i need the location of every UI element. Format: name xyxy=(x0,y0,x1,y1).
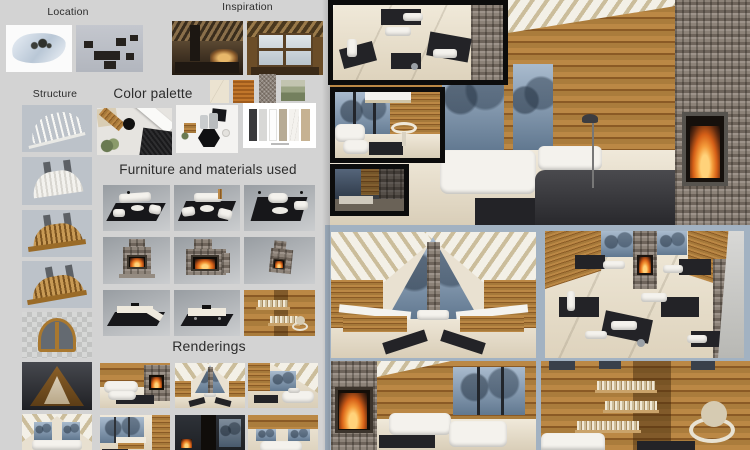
location-site-photo xyxy=(76,25,143,72)
furniture-console-1 xyxy=(103,290,170,336)
sofa xyxy=(119,192,152,203)
seat xyxy=(148,204,161,215)
books xyxy=(270,316,298,323)
section-title-renderings: Renderings xyxy=(130,338,288,354)
inset-render-dark-corner xyxy=(330,164,409,216)
dark-chimney xyxy=(201,415,216,450)
structure-step-2 xyxy=(22,157,92,205)
globe-stem xyxy=(402,132,406,146)
white-sofa xyxy=(108,391,136,400)
rug xyxy=(254,395,278,403)
plant-leaves xyxy=(99,138,119,154)
fire xyxy=(195,259,215,269)
hearth xyxy=(119,274,155,278)
rug xyxy=(379,435,435,448)
bottom-render-shelf-wall xyxy=(541,361,750,450)
seat xyxy=(181,206,195,217)
window-sliver xyxy=(549,361,575,370)
books xyxy=(597,381,655,390)
inspiration-photo-2 xyxy=(247,21,323,75)
white-sofa xyxy=(585,331,607,339)
white-console xyxy=(339,196,373,204)
globe-sphere xyxy=(296,316,305,325)
white-sofa xyxy=(433,49,457,58)
moodboard-2 xyxy=(176,105,238,153)
plant xyxy=(179,131,191,141)
strip-black xyxy=(249,109,257,141)
stone-wall xyxy=(471,5,503,80)
panel-divider-shadow xyxy=(322,0,330,450)
window xyxy=(62,422,80,440)
bottle xyxy=(200,115,208,129)
sofa xyxy=(268,193,288,203)
furniture-silhouette xyxy=(175,62,239,73)
table-oval xyxy=(200,205,214,212)
tv-screen xyxy=(131,303,139,306)
window xyxy=(513,64,553,150)
arch-mullion xyxy=(55,322,59,350)
white-sofa xyxy=(260,441,302,450)
lamp-dot xyxy=(637,339,645,347)
rendering-thumb-2 xyxy=(175,363,245,408)
cabin-blocks xyxy=(76,25,143,72)
white-sofa xyxy=(385,27,411,36)
floor-lamp-pole xyxy=(592,122,594,188)
books xyxy=(577,421,639,430)
furniture-fireplace-2 xyxy=(174,237,240,284)
section-title-structure: Structure xyxy=(12,88,98,100)
white-sofa xyxy=(32,440,82,450)
fire xyxy=(690,126,720,178)
caption-line xyxy=(271,143,289,145)
window xyxy=(256,429,276,441)
inset-render-top-view xyxy=(328,0,508,85)
white-sofa xyxy=(541,433,605,450)
dark-fabric xyxy=(139,128,172,155)
moodboard-3-material-strips xyxy=(243,103,316,148)
side-wall xyxy=(175,381,191,397)
fire xyxy=(181,439,192,448)
structure-step-3 xyxy=(22,210,92,257)
furniture-fireplace-1 xyxy=(103,237,170,284)
seat xyxy=(294,201,308,210)
white-shell xyxy=(31,168,84,199)
structure-step-4 xyxy=(22,261,92,308)
window xyxy=(219,419,241,447)
lamp-dot xyxy=(127,191,130,194)
lamp-dot xyxy=(300,191,303,194)
shelf-board xyxy=(603,410,659,413)
window-frame xyxy=(501,367,504,415)
rug xyxy=(679,259,711,275)
pillow xyxy=(288,388,300,393)
strip-tan-2 xyxy=(301,109,310,141)
lamp-dot xyxy=(258,191,261,194)
side-wall xyxy=(229,381,245,397)
white-sofa xyxy=(611,321,637,330)
white-sofa xyxy=(343,140,369,154)
rendering-thumb-4 xyxy=(100,415,170,450)
wood-wall xyxy=(248,363,270,391)
white-sofa xyxy=(204,393,216,397)
palette-swatch-cream-marble xyxy=(210,80,229,103)
strip-tan xyxy=(279,109,287,141)
rendering-thumb-3 xyxy=(248,363,318,408)
black-disc xyxy=(123,118,135,130)
section-title-inspiration: Inspiration xyxy=(200,1,295,13)
window xyxy=(34,422,52,440)
white-sofa xyxy=(641,293,667,302)
books xyxy=(605,401,657,410)
window xyxy=(453,367,525,415)
rug xyxy=(559,297,599,317)
bottle xyxy=(209,113,218,129)
counter-base xyxy=(343,316,407,332)
fire xyxy=(130,258,144,267)
design-board: Location Inspiration Structure Color pal… xyxy=(0,0,750,450)
bottom-render-top-view xyxy=(545,231,744,358)
furniture-sofa-set-2 xyxy=(174,185,240,231)
inspiration-photo-1 xyxy=(172,21,243,75)
black-hexagon xyxy=(198,129,220,147)
window-sliver xyxy=(691,361,715,370)
white-sofa xyxy=(347,39,357,57)
rendering-thumb-1 xyxy=(100,363,170,408)
lamp-stand xyxy=(218,189,222,199)
chimney xyxy=(208,367,213,393)
furniture-sofa-set-3 xyxy=(244,185,315,231)
globe-sphere xyxy=(701,401,727,427)
white-sofa xyxy=(389,413,451,435)
roof-beams xyxy=(172,21,243,41)
fire xyxy=(151,377,162,388)
white-sofa xyxy=(440,150,536,194)
furniture-shelf-wall xyxy=(244,290,315,336)
cup xyxy=(222,129,230,137)
white-sofa xyxy=(449,421,507,447)
shelf-board xyxy=(256,307,290,310)
tv-screen xyxy=(202,305,211,309)
console-bar xyxy=(188,308,226,316)
furniture-console-2 xyxy=(174,290,240,336)
knob xyxy=(194,317,197,320)
white-sofa xyxy=(567,291,575,311)
floor-lamp-head xyxy=(582,114,598,123)
window xyxy=(657,231,687,255)
white-sofa xyxy=(603,261,625,269)
rendering-thumb-5 xyxy=(175,415,245,450)
inset-render-window-corner xyxy=(330,87,445,163)
strip-marble xyxy=(289,109,299,141)
window-mullion xyxy=(257,48,313,51)
seat xyxy=(113,209,125,217)
palette-swatch-orange-wood xyxy=(233,80,254,103)
white-sofa xyxy=(687,335,707,343)
white-sofa xyxy=(403,13,423,21)
wood-wall xyxy=(152,415,170,450)
bottom-render-fireplace-view xyxy=(331,361,536,450)
palette-swatch-grey-stone xyxy=(259,74,276,106)
wood-wall xyxy=(361,169,379,195)
chimney xyxy=(190,25,200,61)
table-oval xyxy=(272,207,288,214)
window xyxy=(601,231,635,257)
location-terrain-model xyxy=(6,25,72,72)
fire xyxy=(275,261,283,268)
strip-white xyxy=(269,109,277,141)
fire xyxy=(639,257,651,273)
structure-step-1 xyxy=(22,105,92,152)
window-sliver xyxy=(599,361,621,369)
dark-column xyxy=(274,290,288,336)
structure-step-7 xyxy=(22,414,92,450)
strip-grey xyxy=(259,109,267,141)
white-sofa xyxy=(417,310,449,320)
bottom-render-window-view xyxy=(331,232,536,358)
structure-step-6 xyxy=(22,362,92,410)
rug xyxy=(637,441,695,450)
section-title-color-palette: Color palette xyxy=(98,86,208,101)
section-title-location: Location xyxy=(20,6,116,18)
chimney xyxy=(427,242,440,318)
moodboard-1 xyxy=(97,108,172,155)
counter-base xyxy=(460,316,524,332)
window-frame xyxy=(477,367,480,415)
wood-ceiling xyxy=(248,415,318,429)
window xyxy=(288,429,310,441)
rug xyxy=(369,142,403,155)
fire xyxy=(339,393,367,429)
terrain-buildings xyxy=(25,37,54,54)
shelf-board xyxy=(595,390,657,393)
section-title-furniture: Furniture and materials used xyxy=(98,162,318,177)
lamp-dot xyxy=(411,63,418,70)
books xyxy=(258,300,288,307)
window xyxy=(335,169,361,199)
furniture-fireplace-3 xyxy=(244,237,315,284)
table-oval xyxy=(131,205,144,211)
furniture-sofa-set-1 xyxy=(103,185,170,231)
rug xyxy=(575,255,605,269)
rendering-thumb-6 xyxy=(248,415,318,450)
white-sofa xyxy=(663,265,683,273)
side-panel xyxy=(222,253,230,273)
structure-step-5 xyxy=(22,312,92,358)
knob xyxy=(218,317,221,320)
ceiling-beam xyxy=(365,92,411,103)
palette-swatch-green-art xyxy=(281,80,305,101)
